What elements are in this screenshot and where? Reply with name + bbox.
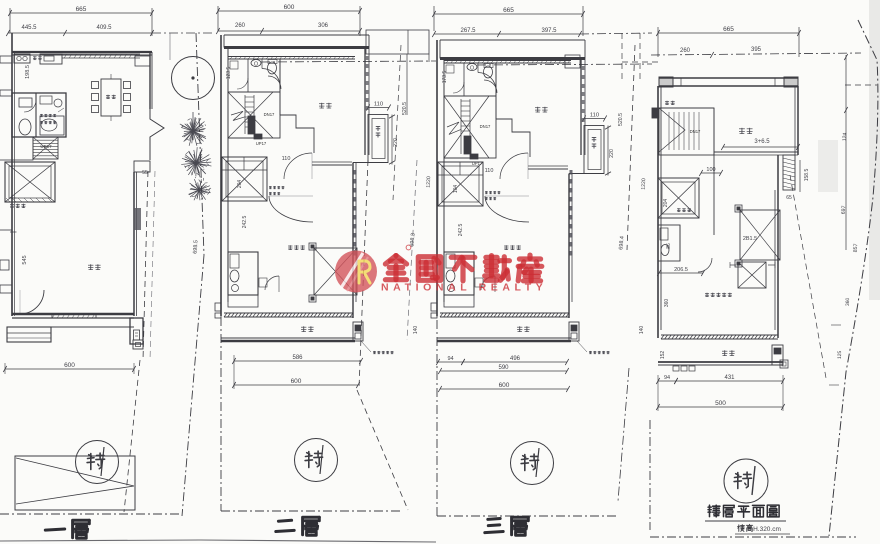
- svg-text:600: 600: [64, 362, 75, 369]
- svg-text:110: 110: [485, 168, 494, 174]
- svg-text:306: 306: [318, 23, 329, 29]
- svg-text:697: 697: [841, 205, 847, 214]
- svg-text:173.5: 173.5: [442, 71, 448, 84]
- svg-text:55: 55: [142, 170, 148, 176]
- svg-text:110: 110: [374, 102, 383, 108]
- svg-text:2B1.5: 2B1.5: [743, 236, 757, 242]
- svg-text:140: 140: [413, 326, 419, 335]
- svg-text:242.5: 242.5: [458, 224, 464, 237]
- svg-text:857: 857: [853, 243, 859, 252]
- svg-text:158.5: 158.5: [804, 169, 810, 182]
- svg-text:242.5: 242.5: [242, 216, 248, 229]
- svg-text:397.5: 397.5: [541, 28, 557, 34]
- svg-text:DN17: DN17: [264, 112, 275, 117]
- svg-text:267.5: 267.5: [460, 28, 476, 34]
- svg-text:220: 220: [609, 149, 615, 158]
- svg-text:94: 94: [664, 375, 670, 381]
- svg-text:UP17: UP17: [256, 141, 267, 146]
- svg-text:431: 431: [724, 375, 735, 381]
- svg-text:94: 94: [447, 356, 453, 362]
- svg-text:3+6.5: 3+6.5: [754, 139, 770, 145]
- svg-text:545: 545: [22, 255, 28, 264]
- svg-text:110: 110: [282, 156, 291, 162]
- svg-text:124: 124: [842, 132, 848, 141]
- svg-text:600: 600: [291, 378, 302, 385]
- svg-text:123.5: 123.5: [226, 67, 232, 80]
- svg-text:104: 104: [453, 185, 459, 194]
- svg-text:698.5: 698.5: [193, 240, 200, 254]
- svg-text:NATIONAL REALTY: NATIONAL REALTY: [381, 282, 547, 294]
- svg-text:665: 665: [76, 6, 87, 13]
- svg-text:204: 204: [663, 199, 669, 208]
- svg-text:1220: 1220: [426, 176, 432, 188]
- svg-text:445.5: 445.5: [21, 25, 37, 31]
- svg-text:1220: 1220: [641, 178, 647, 190]
- svg-text:395: 395: [751, 47, 762, 53]
- svg-text:198.5: 198.5: [25, 65, 31, 79]
- svg-text:600: 600: [284, 4, 295, 11]
- svg-text:600: 600: [499, 382, 510, 389]
- svg-text:360: 360: [845, 297, 851, 306]
- svg-text:110: 110: [590, 113, 599, 119]
- svg-text:260: 260: [680, 48, 691, 54]
- svg-text:H.320.cm: H.320.cm: [753, 526, 781, 533]
- svg-text:140: 140: [639, 326, 645, 335]
- svg-text:665: 665: [723, 26, 734, 33]
- svg-text:520.5: 520.5: [618, 113, 624, 126]
- svg-text:65: 65: [786, 195, 792, 201]
- svg-text:586: 586: [292, 355, 303, 361]
- svg-text:665: 665: [503, 7, 514, 14]
- svg-text:UP17: UP17: [40, 144, 52, 149]
- svg-text:698.4: 698.4: [618, 236, 625, 250]
- svg-text:DN17: DN17: [480, 124, 491, 129]
- svg-text:204: 204: [237, 180, 243, 189]
- svg-text:500: 500: [715, 400, 726, 407]
- svg-text:260: 260: [235, 23, 246, 29]
- svg-text:409.5: 409.5: [96, 25, 112, 31]
- svg-text:590: 590: [498, 365, 509, 371]
- svg-text:206.5: 206.5: [674, 267, 688, 273]
- svg-text:DN17: DN17: [690, 129, 701, 134]
- svg-text:86: 86: [666, 243, 672, 249]
- svg-text:360: 360: [664, 299, 670, 308]
- svg-text:152: 152: [660, 351, 666, 360]
- svg-text:125: 125: [837, 350, 843, 359]
- svg-text:496: 496: [510, 356, 521, 362]
